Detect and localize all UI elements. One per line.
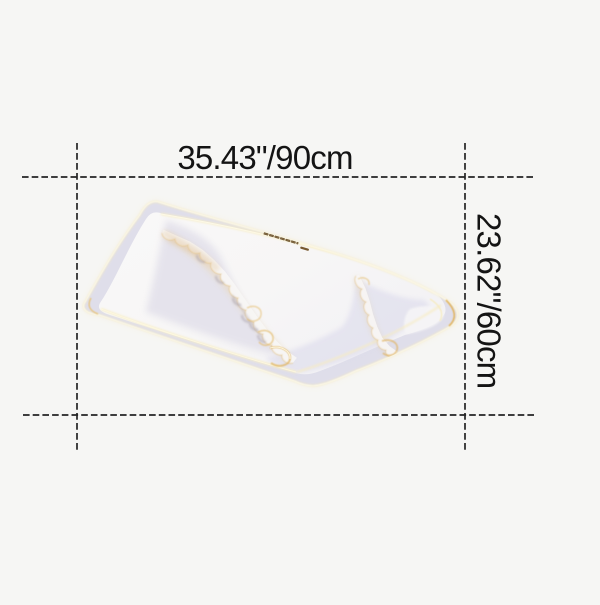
svg-text:23.62"/60cm: 23.62"/60cm: [471, 213, 508, 388]
svg-text:35.43"/90cm: 35.43"/90cm: [177, 139, 352, 176]
